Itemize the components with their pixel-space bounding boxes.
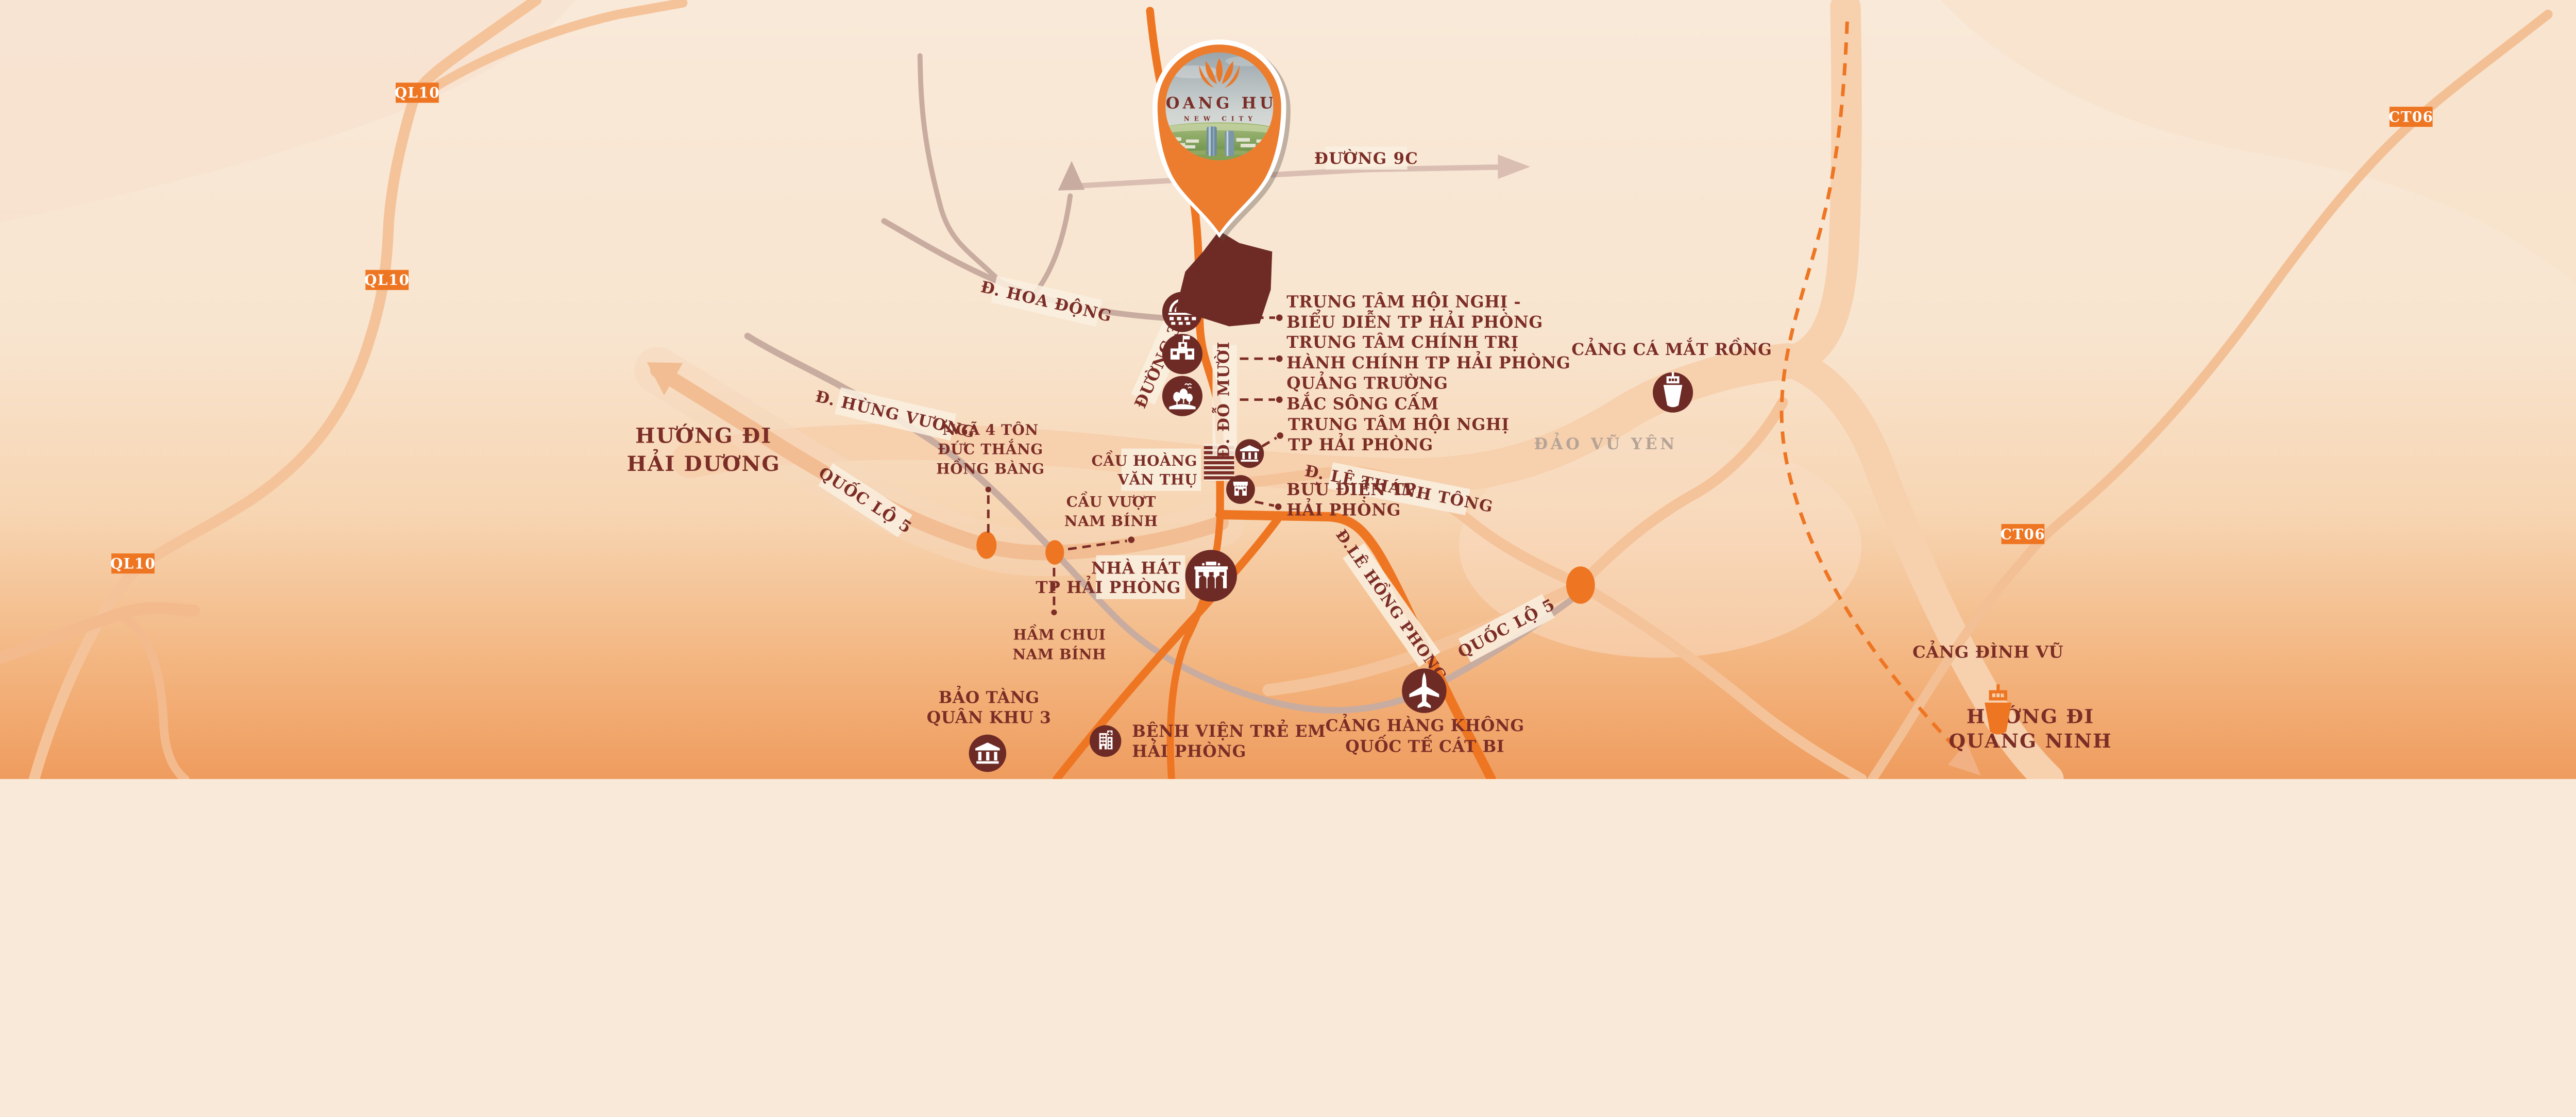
svg-text:QUỐC TẾ CÁT BI: QUỐC TẾ CÁT BI — [1345, 734, 1504, 756]
svg-text:BỆNH VIỆN TRẺ EM: BỆNH VIỆN TRẺ EM — [1132, 719, 1326, 741]
svg-text:ĐƯỜNG 9C: ĐƯỜNG 9C — [1314, 149, 1418, 168]
node-ton-duc-thang — [976, 532, 996, 559]
label-do-muoi: Đ. ĐỖ MƯỜI — [1212, 341, 1237, 458]
area-vu-yen: ĐẢO VŨ YÊN — [1534, 433, 1677, 453]
location-map: ĐƯỜNG 9C Đ. HOA ĐỘNG Đ. HÙNG VƯƠNG ĐƯỜNG… — [0, 0, 2576, 779]
label-duong-9c: ĐƯỜNG 9C — [1314, 147, 1418, 170]
svg-text:TP HẢI PHÒNG: TP HẢI PHÒNG — [1036, 576, 1181, 597]
svg-text:HẢI PHÒNG: HẢI PHÒNG — [1132, 739, 1246, 761]
svg-text:BẢO TÀNG: BẢO TÀNG — [939, 685, 1040, 707]
svg-text:NAM BÍNH: NAM BÍNH — [1064, 513, 1158, 530]
svg-text:CẢNG HÀNG KHÔNG: CẢNG HÀNG KHÔNG — [1326, 714, 1524, 735]
svg-text:TRUNG TÂM HỘI NGHỊ: TRUNG TÂM HỘI NGHỊ — [1288, 414, 1510, 434]
node-ql5-east — [1566, 566, 1595, 604]
svg-text:NHÀ HÁT: NHÀ HÁT — [1091, 558, 1181, 578]
svg-text:CẦU VƯỢT: CẦU VƯỢT — [1066, 492, 1156, 511]
badge-ct06-1: CT06 — [2388, 107, 2433, 127]
svg-text:VĂN THỤ: VĂN THỤ — [1117, 470, 1197, 488]
svg-text:HẢI PHÒNG: HẢI PHÒNG — [1286, 498, 1401, 519]
svg-text:CẦU HOÀNG: CẦU HOÀNG — [1091, 450, 1197, 469]
svg-text:QUẢNG NINH: QUẢNG NINH — [1948, 727, 2112, 752]
node-nam-binh — [1045, 540, 1064, 564]
svg-text:BƯU ĐIỆN TP: BƯU ĐIỆN TP — [1286, 480, 1416, 499]
poi-ton-duc-thang-junction: NGÃ 4 TÔN ĐỨC THẮNG HỒNG BÀNG — [936, 421, 1044, 477]
svg-text:CẢNG ĐÌNH VŨ: CẢNG ĐÌNH VŨ — [1912, 640, 2063, 662]
svg-text:QL10: QL10 — [364, 272, 410, 289]
badge-ql10-1: QL10 — [395, 82, 440, 103]
svg-text:ĐỨC THẮNG: ĐỨC THẮNG — [938, 439, 1043, 458]
badge-ql10-2: QL10 — [364, 270, 410, 290]
svg-text:QL10: QL10 — [110, 555, 156, 572]
svg-text:QUẢNG TRƯỜNG: QUẢNG TRƯỜNG — [1286, 371, 1448, 393]
svg-text:CT06: CT06 — [2388, 108, 2433, 125]
svg-text:NAM BÍNH: NAM BÍNH — [1012, 646, 1106, 663]
svg-text:QUÂN KHU 3: QUÂN KHU 3 — [927, 707, 1052, 727]
svg-text:HƯỚNG ĐI: HƯỚNG ĐI — [1967, 705, 2094, 727]
svg-text:HẢI DƯƠNG: HẢI DƯƠNG — [627, 449, 781, 476]
badge-ql10-3: QL10 — [110, 553, 156, 573]
badge-ct06-2: CT06 — [2001, 524, 2045, 544]
svg-text:HẦM CHUI: HẦM CHUI — [1013, 624, 1106, 644]
svg-text:TRUNG TÂM HỘI NGHỊ -: TRUNG TÂM HỘI NGHỊ - — [1286, 291, 1521, 311]
svg-text:QL10: QL10 — [395, 84, 440, 101]
svg-text:HỒNG BÀNG: HỒNG BÀNG — [936, 458, 1044, 477]
svg-text:CẢNG CÁ MẮT RỒNG: CẢNG CÁ MẮT RỒNG — [1571, 337, 1772, 359]
svg-text:HƯỚNG ĐI: HƯỚNG ĐI — [635, 422, 772, 448]
svg-text:Đ. ĐỖ MƯỜI: Đ. ĐỖ MƯỜI — [1212, 341, 1233, 458]
brand-name: HOANG HUY — [1147, 94, 1291, 113]
svg-text:NGÃ 4 TÔN: NGÃ 4 TÔN — [942, 421, 1039, 438]
brand-subtitle: NEW CITY — [1184, 115, 1257, 122]
svg-text:TRUNG TÂM CHÍNH TRỊ: TRUNG TÂM CHÍNH TRỊ — [1286, 332, 1519, 352]
svg-text:BẮC SÔNG CẤM: BẮC SÔNG CẤM — [1286, 392, 1439, 413]
svg-text:CT06: CT06 — [2001, 526, 2045, 543]
svg-text:HÀNH CHÍNH TP HẢI PHÒNG: HÀNH CHÍNH TP HẢI PHÒNG — [1286, 351, 1570, 373]
svg-text:TP HẢI PHÒNG: TP HẢI PHÒNG — [1288, 433, 1433, 454]
